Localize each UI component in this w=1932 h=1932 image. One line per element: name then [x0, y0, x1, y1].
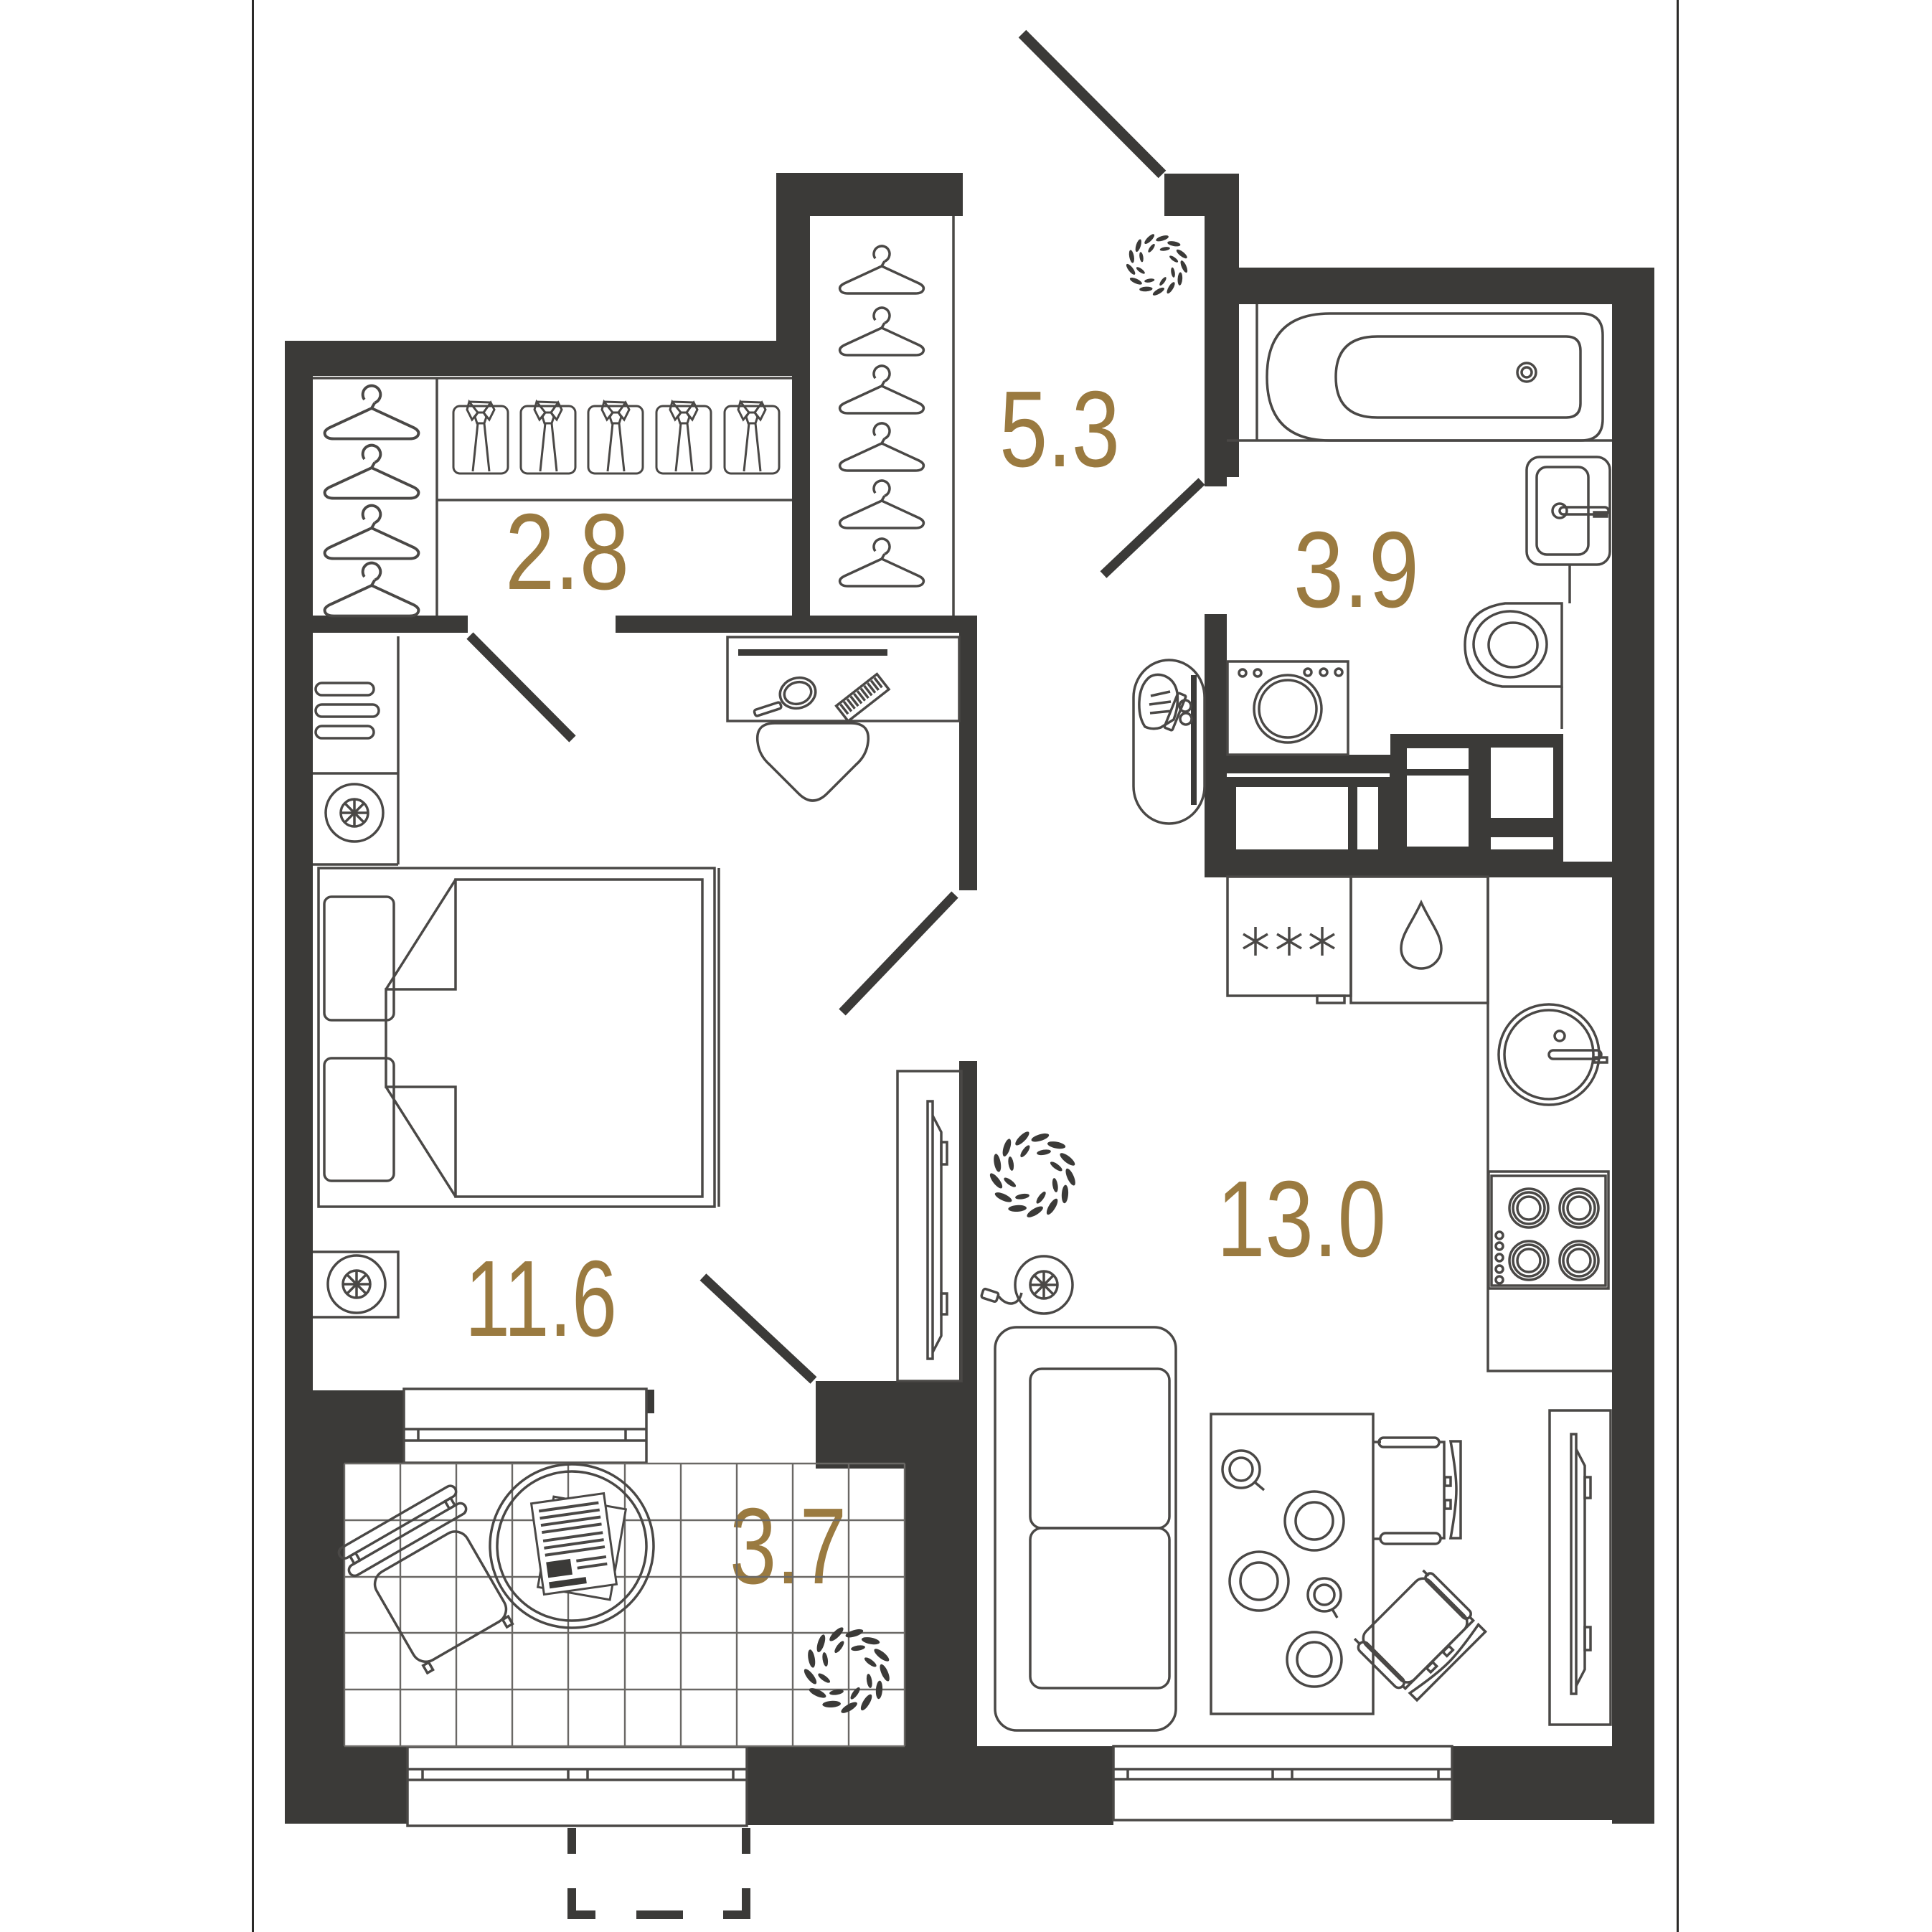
svg-text:13.0: 13.0 — [1217, 1158, 1386, 1279]
svg-text:3.9: 3.9 — [1294, 509, 1419, 630]
svg-text:2.8: 2.8 — [505, 491, 629, 612]
svg-text:5.3: 5.3 — [999, 368, 1120, 489]
svg-text:11.6: 11.6 — [465, 1238, 617, 1359]
svg-text:3.7: 3.7 — [730, 1485, 847, 1606]
